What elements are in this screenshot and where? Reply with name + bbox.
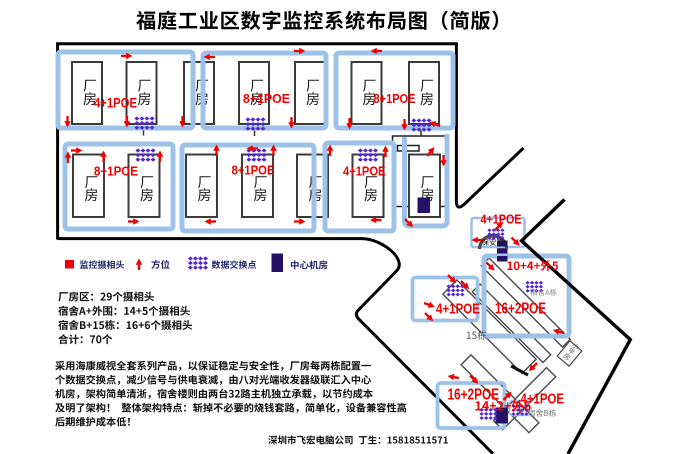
svg-text:16+2POE: 16+2POE bbox=[448, 387, 500, 404]
svg-text:4+1POE: 4+1POE bbox=[94, 96, 137, 111]
svg-text:16+2POE: 16+2POE bbox=[495, 301, 546, 318]
svg-text:8+1POE: 8+1POE bbox=[232, 164, 275, 178]
svg-text:8+1POE: 8+1POE bbox=[94, 164, 138, 179]
svg-text:8+1POE: 8+1POE bbox=[374, 91, 416, 106]
svg-text:4+1POE: 4+1POE bbox=[436, 301, 480, 318]
svg-text:4+1POE: 4+1POE bbox=[343, 164, 386, 179]
svg-text:8+1POE: 8+1POE bbox=[243, 91, 290, 106]
svg-text:4+1POE: 4+1POE bbox=[481, 212, 522, 227]
